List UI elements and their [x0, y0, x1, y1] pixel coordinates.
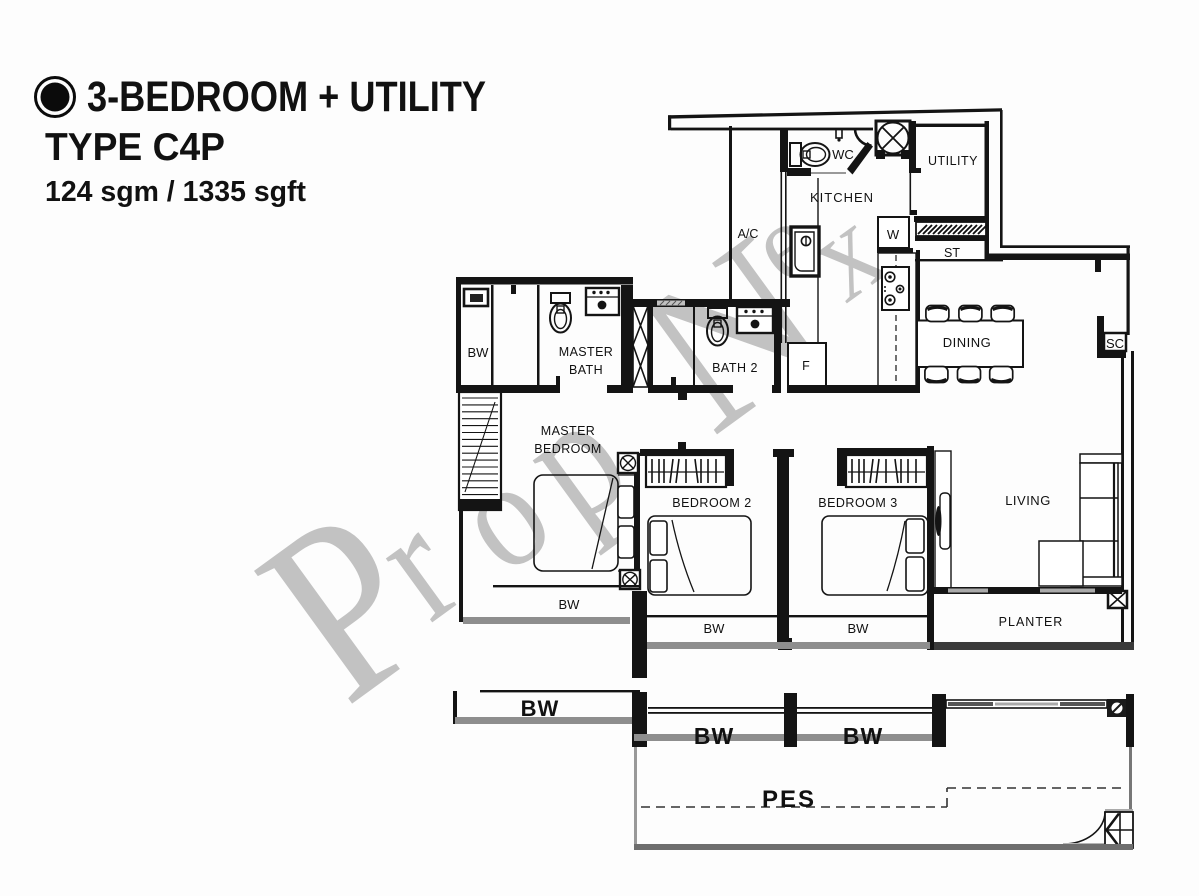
svg-text:BW: BW	[843, 723, 883, 749]
svg-text:MASTER: MASTER	[541, 424, 596, 438]
svg-text:BW: BW	[559, 597, 581, 612]
svg-text:3-BEDROOM + UTILITY: 3-BEDROOM + UTILITY	[87, 73, 486, 121]
svg-text:WC: WC	[832, 147, 854, 162]
svg-text:BW: BW	[704, 621, 726, 636]
svg-text:BW: BW	[468, 345, 490, 360]
svg-text:F: F	[802, 359, 810, 373]
svg-text:TYPE C4P: TYPE C4P	[45, 126, 225, 169]
svg-text:BW: BW	[694, 723, 734, 749]
svg-text:BW: BW	[848, 621, 870, 636]
svg-text:UTILITY: UTILITY	[928, 154, 978, 168]
svg-text:BATH 2: BATH 2	[712, 361, 758, 375]
svg-text:DINING: DINING	[943, 335, 992, 350]
svg-text:BEDROOM: BEDROOM	[534, 442, 601, 456]
svg-text:KITCHEN: KITCHEN	[810, 190, 874, 205]
svg-text:LIVING: LIVING	[1005, 493, 1051, 508]
svg-text:SC: SC	[1106, 336, 1124, 351]
svg-text:ST: ST	[944, 246, 960, 260]
svg-text:PES: PES	[762, 786, 816, 813]
svg-text:BEDROOM 2: BEDROOM 2	[672, 496, 752, 510]
svg-text:PLANTER: PLANTER	[999, 615, 1064, 629]
svg-text:BATH: BATH	[569, 363, 603, 377]
svg-text:BEDROOM 3: BEDROOM 3	[818, 496, 898, 510]
svg-text:MASTER: MASTER	[559, 345, 614, 359]
svg-text:124 sgm / 1335 sgft: 124 sgm / 1335 sgft	[45, 176, 306, 208]
svg-text:A/C: A/C	[738, 227, 759, 241]
svg-text:W: W	[887, 227, 900, 242]
